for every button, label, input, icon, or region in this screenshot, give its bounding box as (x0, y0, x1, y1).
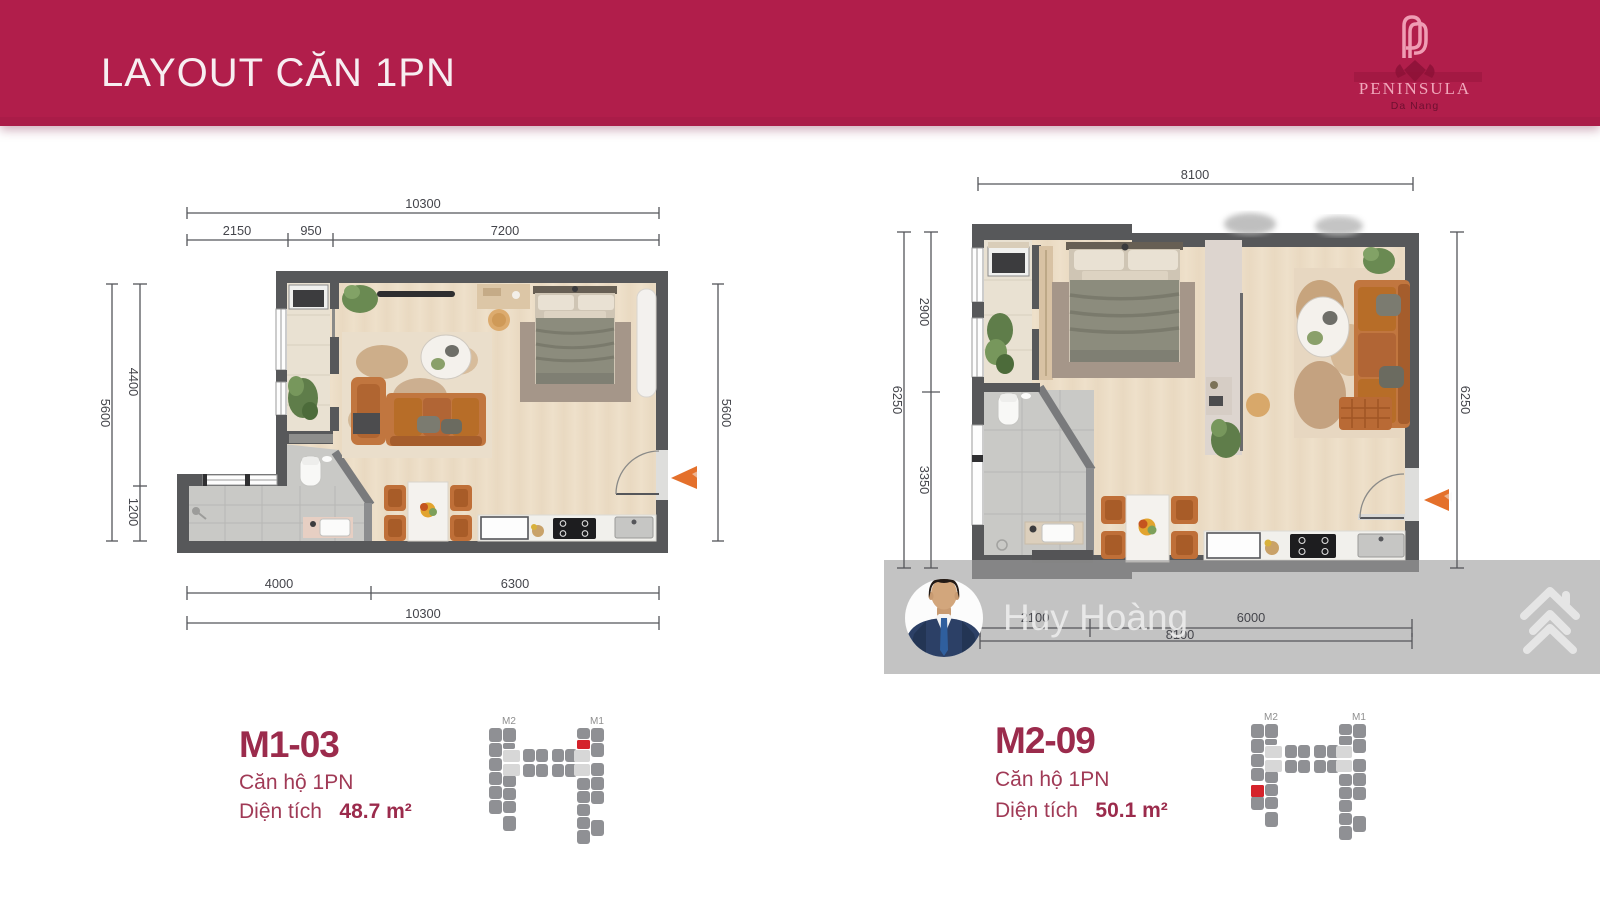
svg-text:M2: M2 (1264, 712, 1278, 723)
svg-text:Huy Hoàng: Huy Hoàng (1003, 597, 1188, 638)
svg-text:7200: 7200 (491, 223, 519, 238)
svg-text:M1: M1 (590, 716, 604, 727)
svg-text:3350: 3350 (917, 466, 932, 494)
svg-text:M2: M2 (502, 716, 516, 727)
svg-text:8100: 8100 (1181, 167, 1209, 182)
svg-text:950: 950 (300, 223, 321, 238)
svg-text:4400: 4400 (126, 368, 141, 396)
svg-text:2150: 2150 (223, 223, 251, 238)
svg-text:2900: 2900 (917, 298, 932, 326)
svg-text:10300: 10300 (405, 606, 441, 621)
svg-text:6000: 6000 (1237, 610, 1265, 625)
svg-text:6300: 6300 (501, 576, 529, 591)
svg-text:M1: M1 (1352, 712, 1366, 723)
svg-text:6250: 6250 (1458, 386, 1473, 414)
svg-text:6250: 6250 (890, 386, 905, 414)
svg-text:5600: 5600 (719, 399, 734, 427)
svg-text:1200: 1200 (126, 498, 141, 526)
svg-text:4000: 4000 (265, 576, 293, 591)
svg-text:5600: 5600 (98, 399, 113, 427)
svg-text:10300: 10300 (405, 196, 441, 211)
